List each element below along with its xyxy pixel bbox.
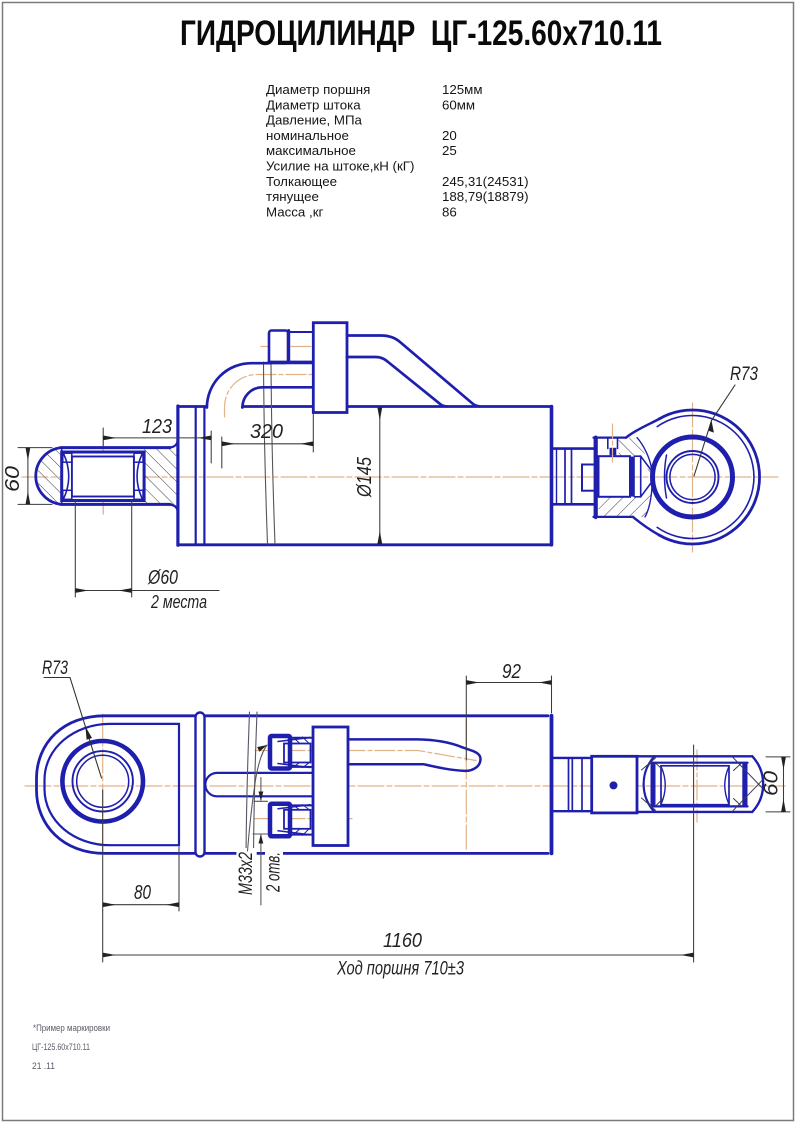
- svg-text:Диаметр штока: Диаметр штока: [266, 97, 361, 112]
- svg-text:максимальное: максимальное: [266, 143, 356, 158]
- svg-text:М33х2: М33х2: [236, 852, 257, 895]
- svg-text:80: 80: [134, 882, 151, 904]
- svg-text:188,79(18879): 188,79(18879): [442, 189, 529, 204]
- svg-text:2 места: 2 места: [150, 592, 207, 612]
- svg-text:21 .11: 21 .11: [32, 1061, 55, 1072]
- svg-text:245,31(24531): 245,31(24531): [442, 174, 529, 189]
- svg-text:25: 25: [442, 143, 457, 158]
- svg-text:92: 92: [502, 661, 521, 683]
- svg-text:Ход поршня 710±3: Ход поршня 710±3: [336, 959, 464, 980]
- svg-text:1160: 1160: [383, 930, 422, 952]
- svg-text:86: 86: [442, 204, 457, 219]
- svg-text:*Пример маркировки: *Пример маркировки: [33, 1023, 110, 1034]
- svg-text:тянущее: тянущее: [266, 189, 319, 204]
- svg-text:Масса ,кг: Масса ,кг: [266, 204, 324, 219]
- svg-text:R73: R73: [730, 364, 758, 385]
- svg-text:Толкающее: Толкающее: [266, 174, 337, 189]
- svg-text:Диаметр поршня: Диаметр поршня: [266, 82, 370, 97]
- svg-text:номинальное: номинальное: [266, 128, 349, 143]
- svg-text:R73: R73: [42, 658, 68, 679]
- svg-text:ГИДРОЦИЛИНДР ЦГ-125.60х710.11: ГИДРОЦИЛИНДР ЦГ-125.60х710.11: [180, 14, 662, 53]
- svg-text:320: 320: [250, 421, 283, 443]
- svg-text:20: 20: [442, 128, 457, 143]
- svg-text:60: 60: [761, 771, 783, 796]
- svg-text:Давление, МПа: Давление, МПа: [266, 113, 363, 128]
- svg-text:125мм: 125мм: [442, 82, 482, 97]
- svg-text:Ø145: Ø145: [354, 456, 376, 498]
- svg-text:2 отв.: 2 отв.: [264, 852, 285, 893]
- svg-text:60: 60: [2, 466, 24, 492]
- svg-text:60мм: 60мм: [442, 97, 475, 112]
- svg-text:Усилие на штоке,кН (кГ): Усилие на штоке,кН (кГ): [266, 159, 414, 174]
- svg-text:123: 123: [142, 416, 172, 438]
- svg-text:Ø60: Ø60: [147, 567, 178, 589]
- svg-text:ЦГ-125.60х710.11: ЦГ-125.60х710.11: [32, 1042, 90, 1053]
